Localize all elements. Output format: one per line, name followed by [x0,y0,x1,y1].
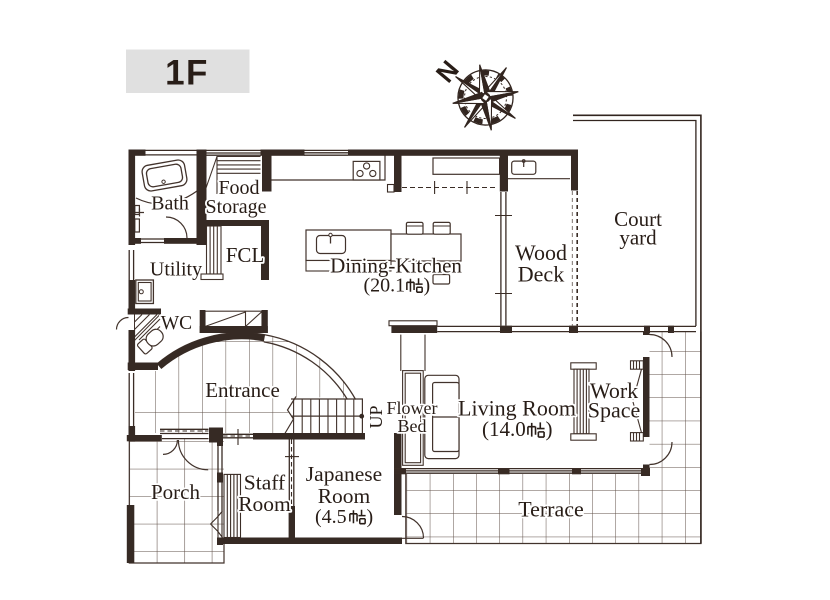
svg-text:Entrance: Entrance [205,378,280,402]
svg-text:): ) [424,275,431,297]
svg-text:Storage: Storage [205,196,266,218]
svg-text:Japanese: Japanese [306,462,382,486]
svg-text:(20.1: (20.1 [364,275,406,297]
svg-text:WC: WC [161,313,192,334]
svg-text:Room: Room [318,484,371,508]
svg-text:1F: 1F [165,54,209,93]
svg-text:yard: yard [619,226,657,250]
svg-text:Space: Space [588,398,641,423]
svg-text:Bed: Bed [398,416,427,436]
svg-text:Porch: Porch [151,480,200,504]
svg-text:UP: UP [366,405,386,428]
svg-text:Terrace: Terrace [518,497,584,522]
svg-text:Bath: Bath [151,193,189,215]
svg-text:(4.5: (4.5 [315,506,347,528]
svg-text:Room: Room [238,492,291,516]
svg-text:Flower: Flower [387,398,438,418]
svg-text:Staff: Staff [244,471,286,495]
svg-text:): ) [367,506,374,528]
svg-text:(14.0: (14.0 [482,417,526,441]
svg-text:FCL: FCL [226,243,265,267]
svg-text:Utility: Utility [150,259,202,281]
svg-text:): ) [546,417,553,441]
svg-text:Deck: Deck [518,262,564,287]
